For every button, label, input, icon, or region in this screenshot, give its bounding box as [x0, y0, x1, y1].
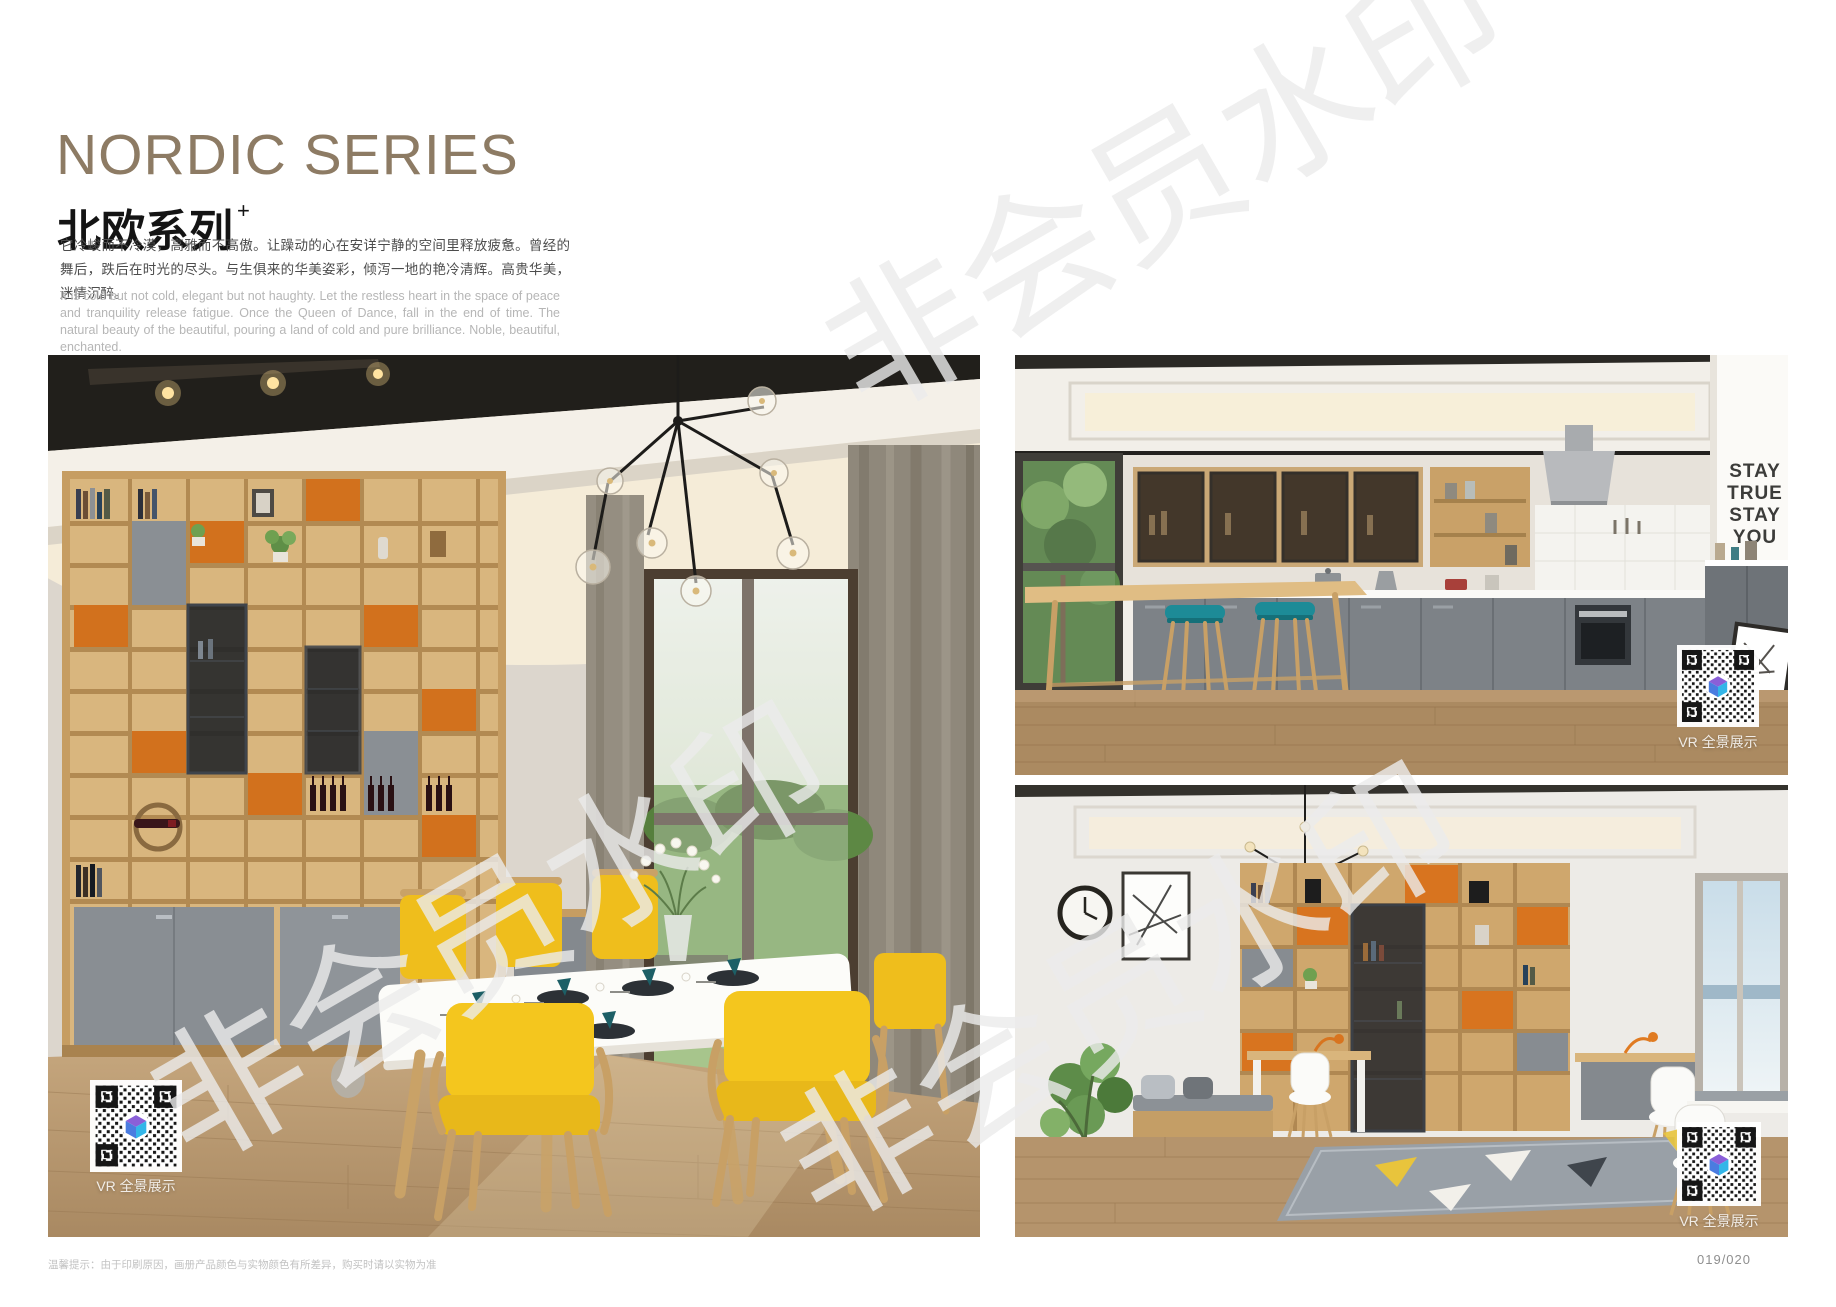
page-title: NORDIC SERIES	[56, 122, 519, 188]
qr-code-study-vr	[1677, 1122, 1761, 1206]
qr-image	[1677, 645, 1759, 727]
wall-text-line: STAY	[1729, 461, 1781, 482]
qr-image	[90, 1080, 182, 1172]
vr-panorama-label: VR 全景展示	[1663, 732, 1773, 752]
abstract-art-frame	[1123, 873, 1189, 959]
window	[1687, 873, 1788, 1113]
backsplash	[1535, 505, 1713, 590]
dining-room-illustration	[48, 355, 980, 1237]
page-number: 019/020	[1697, 1252, 1751, 1267]
subtitle-plus: +	[237, 198, 250, 223]
photo-kitchen: STAY TRUE STAY YOU	[1015, 355, 1788, 775]
qr-image	[1677, 1122, 1761, 1206]
photo-study-room	[1015, 785, 1788, 1237]
vr-panorama-label: VR 全景展示	[1664, 1211, 1774, 1231]
wall-quote: STAY TRUE STAY YOU	[1727, 461, 1783, 548]
wall-clock	[1060, 888, 1110, 938]
wall-text-line: TRUE	[1727, 483, 1783, 504]
footer-disclaimer: 温馨提示：由于印刷原因，画册产品颜色与实物颜色有所差异，购买时请以实物为准	[48, 1257, 437, 1272]
catalog-page: NORDIC SERIES 北欧系列+ 它冷峻而不冷漠，高雅而不高傲。让躁动的心…	[0, 0, 1836, 1307]
qr-code-dining-vr	[90, 1080, 182, 1172]
qr-code-kitchen-vr	[1677, 645, 1759, 727]
study-room-illustration	[1015, 785, 1788, 1237]
garden-window	[1015, 453, 1123, 691]
description-english: It is cold but not cold, elegant but not…	[60, 288, 560, 356]
photo-dining-room	[48, 355, 980, 1237]
kitchen-illustration: STAY TRUE STAY YOU	[1015, 355, 1788, 775]
floor-jar	[331, 1056, 365, 1098]
shelving-unit	[1240, 863, 1570, 1131]
wall-text-line: STAY	[1729, 505, 1781, 526]
upper-cabinets	[1133, 467, 1530, 567]
vr-panorama-label: VR 全景展示	[81, 1176, 191, 1196]
